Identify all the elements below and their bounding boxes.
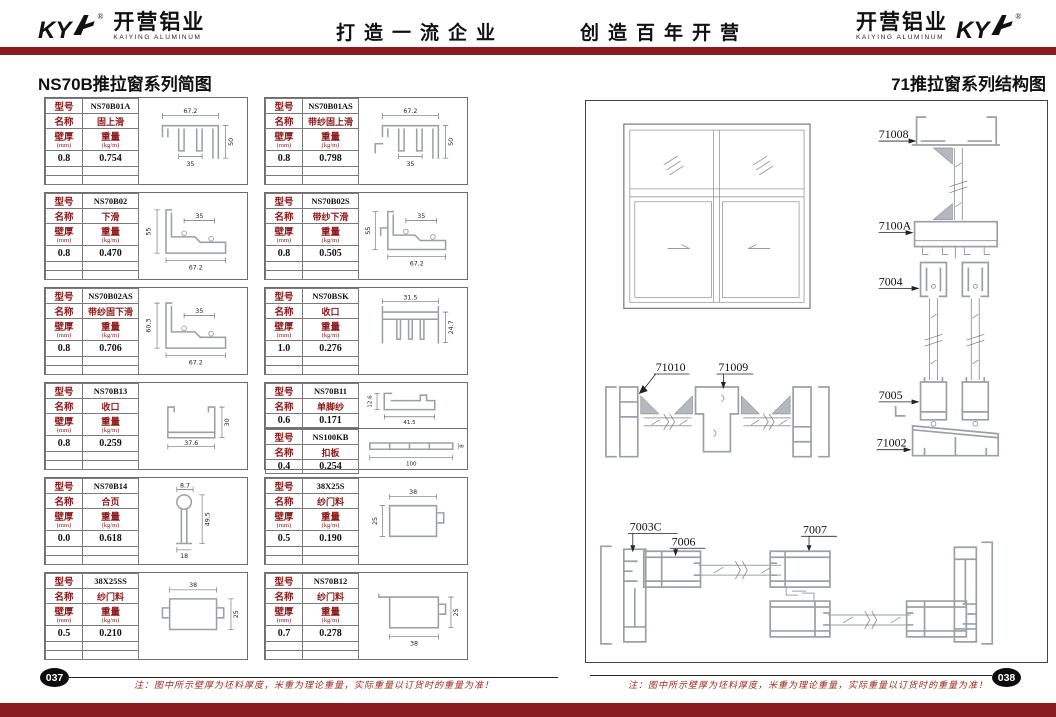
spec-table: 型号NS70B11 名称单脚纱 0.60.171 — [265, 383, 359, 428]
dim-right: 50 — [448, 138, 455, 146]
model-value: 38X25SS — [83, 574, 139, 589]
profile-half-NS70B11: 型号NS70B11 名称单脚纱 0.60.171 12.6 41.5 — [265, 383, 467, 428]
thickness-value: 0.5 — [266, 531, 303, 547]
dim-bottom: 18 — [180, 553, 188, 560]
profile-drawing: 55 35 67.2 — [139, 193, 249, 279]
model-label: 型号 — [266, 430, 303, 445]
profile-card-grid: 型号NS70B01A 名称固上滑 壁厚(mm) 重量(kg/m) 0.80.75… — [44, 97, 468, 660]
dim-left: 55 — [365, 227, 372, 235]
glass-hatch — [664, 156, 774, 175]
thickness-label: 壁厚(mm) — [46, 224, 83, 246]
profile-outline — [162, 599, 223, 630]
weight-label: 重量(kg/m) — [83, 604, 139, 626]
name-value: 带纱固下滑 — [83, 304, 139, 319]
profile-card-NS70B02S: 型号NS70B02S 名称带纱下滑 壁厚(mm) 重量(kg/m) 0.80.5… — [264, 192, 468, 280]
label-7004: 7004 — [879, 274, 903, 288]
weight-label: 重量(kg/m) — [303, 129, 359, 151]
profile-section-drawing: 100 8 — [359, 432, 469, 472]
name-label: 名称 — [266, 494, 303, 509]
thickness-value: 0.8 — [46, 341, 83, 357]
window-elevation — [624, 124, 810, 308]
profile-section-drawing: 31.5 24.7 — [359, 289, 469, 373]
weight-label: 重量(kg/m) — [83, 414, 139, 436]
right-jamb — [793, 387, 829, 457]
structure-diagram-panel: 71008 7100A 7004 7005 71002 — [585, 100, 1048, 663]
dim-right: 49.5 — [204, 512, 211, 526]
spec-table: 型号NS70BSK 名称收口 壁厚(mm) 重量(kg/m) 1.00.276 — [265, 288, 359, 375]
weight-value: 0.259 — [83, 436, 139, 452]
registered-mark: ® — [97, 12, 103, 21]
profile-drawing: 60.3 35 67.2 — [139, 288, 249, 374]
dim-right: 30 — [224, 418, 231, 426]
dim-top: 38 — [189, 582, 197, 589]
profile-outline — [381, 212, 446, 250]
model-value: NS70B02S — [303, 194, 359, 209]
model-value: NS70B02 — [83, 194, 139, 209]
profile-outline — [177, 508, 191, 543]
name-value: 固上滑 — [83, 114, 139, 129]
profile-section-drawing: 60.3 35 67.2 — [139, 289, 249, 373]
thickness-label: 壁厚(mm) — [266, 319, 303, 341]
thickness-value: 0.0 — [46, 531, 83, 547]
model-label: 型号 — [266, 384, 303, 399]
name-value: 收口 — [83, 399, 139, 414]
vertical-section — [896, 117, 1000, 456]
profile-outline — [382, 307, 438, 343]
footer-note-right: 注：图中所示壁厚为坯料厚度，米重为理论重量，实际重量以订货时的重量为准！ — [628, 678, 972, 691]
model-value: NS70B02AS — [83, 289, 139, 304]
weight-value: 0.618 — [83, 531, 139, 547]
label-7007: 7007 — [803, 522, 827, 536]
profile-section-drawing: 12.6 41.5 — [359, 386, 469, 426]
hinge-knuckle — [177, 495, 191, 509]
sash-top-7004 — [921, 263, 989, 297]
profile-outline — [370, 442, 453, 448]
dim-top: 8.7 — [180, 483, 190, 490]
dim-top: 38 — [409, 489, 417, 496]
model-label: 型号 — [46, 384, 83, 399]
weight-value: 0.190 — [303, 531, 359, 547]
dim-right: 50 — [228, 138, 235, 146]
weight-label: 重量(kg/m) — [303, 509, 359, 531]
name-label: 名称 — [266, 209, 303, 224]
dim-left: 25 — [372, 517, 379, 525]
weight-label: 重量(kg/m) — [83, 509, 139, 531]
profile-card-38X25SS: 型号38X25SS 名称纱门料 壁厚(mm) 重量(kg/m) 0.50.210… — [44, 572, 248, 660]
profile-card-NS70B02: 型号NS70B02 名称下滑 壁厚(mm) 重量(kg/m) 0.80.470 … — [44, 192, 248, 280]
thickness-label: 壁厚(mm) — [46, 414, 83, 436]
profile-card-NS70B14: 型号NS70B14 名称合页 壁厚(mm) 重量(kg/m) 0.00.618 … — [44, 477, 248, 565]
sash-stile-7006 — [644, 551, 701, 587]
sash-handles — [668, 245, 771, 249]
weight-value: 0.470 — [83, 246, 139, 262]
profile-drawing: 12.6 41.5 — [359, 383, 469, 428]
dim-bottom: 37.6 — [184, 440, 198, 447]
logo-cn-right: 开营铝业 — [856, 12, 948, 33]
name-label: 名称 — [46, 209, 83, 224]
spec-table: 型号NS70B13 名称收口 壁厚(mm) 重量(kg/m) 0.80.259 — [45, 383, 139, 470]
spec-table: 型号NS70B02AS 名称带纱固下滑 壁厚(mm) 重量(kg/m) 0.80… — [45, 288, 139, 375]
label-71002: 71002 — [877, 436, 907, 450]
profile-drawing: 67.2 35 50 — [359, 98, 469, 184]
profile-drawing: 8.7 49.5 18 — [139, 478, 249, 564]
thickness-label: 壁厚(mm) — [266, 129, 303, 151]
name-label: 名称 — [46, 304, 83, 319]
left-section-title: NS70B推拉窗系列简图 — [38, 70, 212, 95]
thickness-value: 0.6 — [266, 414, 303, 428]
thickness-label: 壁厚(mm) — [266, 509, 303, 531]
name-value: 收口 — [303, 304, 359, 319]
dim-top: 31.5 — [403, 294, 417, 301]
profile-card-NS70B01A: 型号NS70B01A 名称固上滑 壁厚(mm) 重量(kg/m) 0.80.75… — [44, 97, 248, 185]
label-71008: 71008 — [879, 127, 909, 141]
mullion-71009 — [696, 387, 739, 452]
dimension-lines — [154, 303, 225, 358]
model-value: NS70B01A — [83, 99, 139, 114]
name-label: 名称 — [266, 589, 303, 604]
profile-drawing: 55 35 67.2 — [359, 193, 469, 279]
model-value: NS70B01AS — [303, 99, 359, 114]
profile-section-drawing: 67.2 35 50 — [139, 99, 249, 183]
logo-ky-left: KY® — [38, 12, 103, 43]
ky-text: KY — [38, 17, 71, 44]
weight-value: 0.276 — [303, 341, 359, 357]
spec-table: 型号NS70B14 名称合页 壁厚(mm) 重量(kg/m) 0.00.618 — [45, 478, 139, 565]
weight-label: 重量(kg/m) — [83, 224, 139, 246]
profile-card-NS70B01AS: 型号NS70B01AS 名称带纱固上滑 壁厚(mm) 重量(kg/m) 0.80… — [264, 97, 468, 185]
spec-table: 型号38X25SS 名称纱门料 壁厚(mm) 重量(kg/m) 0.50.210 — [45, 573, 139, 660]
name-value: 纱门料 — [83, 589, 139, 604]
profile-card-NS70B12: 型号NS70B12 名称纱门料 壁厚(mm) 重量(kg/m) 0.70.278… — [264, 572, 468, 660]
registered-mark: ® — [1015, 12, 1021, 21]
model-value: NS100KB — [303, 430, 359, 445]
spec-table: 型号NS70B02S 名称带纱下滑 壁厚(mm) 重量(kg/m) 0.80.5… — [265, 193, 359, 280]
profile-card-NS70B11-NS100KB: 型号NS70B11 名称单脚纱 0.60.171 12.6 41.5 型号NS1… — [264, 382, 468, 470]
name-label: 名称 — [46, 399, 83, 414]
name-label: 名称 — [266, 304, 303, 319]
label-71010: 71010 — [656, 360, 686, 374]
profile-outline — [168, 407, 215, 438]
weight-label: 重量(kg/m) — [303, 604, 359, 626]
profile-drawing: 100 8 — [359, 429, 469, 474]
profile-section-drawing: 38 25 — [139, 574, 249, 658]
thickness-value: 0.4 — [266, 460, 303, 474]
profile-section-drawing: 55 35 67.2 — [139, 194, 249, 278]
dim-top: 35 — [195, 308, 203, 315]
right-section-title: 71推拉窗系列结构图 — [891, 70, 1046, 95]
model-value: 38X25S — [303, 479, 359, 494]
dim-right: 25 — [233, 610, 240, 618]
footer-rule-right — [590, 675, 992, 676]
profile-drawing: 38 25 — [139, 573, 249, 659]
profile-outline — [379, 594, 446, 627]
ky-text: KY — [956, 17, 989, 44]
thickness-value: 0.5 — [46, 626, 83, 642]
name-value: 下滑 — [83, 209, 139, 224]
left-jamb-7003C — [601, 546, 646, 644]
dimension-lines — [390, 597, 454, 639]
weight-label: 重量(kg/m) — [83, 129, 139, 151]
logo-en-left: KAIYING ALUMINUM — [113, 35, 205, 42]
profile-outline — [390, 506, 444, 537]
profile-drawing: 38 25 — [359, 478, 469, 564]
thickness-label: 壁厚(mm) — [46, 129, 83, 151]
spec-table: 型号NS70B01A 名称固上滑 壁厚(mm) 重量(kg/m) 0.80.75… — [45, 98, 139, 185]
profile-section-drawing: 8.7 49.5 18 — [139, 479, 249, 563]
dim-bottom: 100 — [406, 461, 417, 467]
model-value: NS70B13 — [83, 384, 139, 399]
name-value: 纱门料 — [303, 589, 359, 604]
structure-diagram: 71008 7100A 7004 7005 71002 — [586, 101, 1047, 662]
profile-section-drawing: 38 25 — [359, 574, 469, 658]
profile-section-drawing: 37.6 30 — [139, 384, 249, 468]
kaiying-logo-mark-icon — [71, 12, 97, 38]
profile-card-NS70B02AS: 型号NS70B02AS 名称带纱固下滑 壁厚(mm) 重量(kg/m) 0.80… — [44, 287, 248, 375]
lower-horizontal-section: 7003C 7006 7007 — [601, 519, 992, 644]
logo-cn-left: 开营铝业 — [113, 12, 205, 33]
spec-table: 型号NS70B12 名称纱门料 壁厚(mm) 重量(kg/m) 0.70.278 — [265, 573, 359, 660]
weight-value: 0.754 — [83, 151, 139, 167]
slogan-right: 创造百年开营 — [580, 18, 748, 45]
interlock — [786, 587, 814, 601]
dim-bottom: 35 — [406, 161, 414, 168]
name-value: 纱门料 — [303, 494, 359, 509]
thickness-value: 0.7 — [266, 626, 303, 642]
dim-right: 24.7 — [448, 320, 455, 334]
dim-top: 67.2 — [403, 108, 417, 115]
dimension-lines — [380, 494, 437, 536]
weight-value: 0.505 — [303, 246, 359, 262]
name-value: 扣板 — [303, 445, 359, 460]
model-label: 型号 — [46, 289, 83, 304]
model-label: 型号 — [46, 574, 83, 589]
weight-value: 0.706 — [83, 341, 139, 357]
thickness-label: 壁厚(mm) — [46, 604, 83, 626]
thickness-value: 1.0 — [266, 341, 303, 357]
transom-7100A — [915, 222, 998, 247]
dim-bottom: 38 — [410, 641, 418, 648]
thickness-label: 壁厚(mm) — [46, 509, 83, 531]
footer-note-left: 注：图中所示壁厚为坯料厚度，米重为理论重量，实际重量以订货时的重量为准！ — [96, 678, 532, 691]
header-accent-bar — [0, 47, 1056, 55]
thickness-value: 0.8 — [46, 436, 83, 452]
model-label: 型号 — [46, 99, 83, 114]
name-value: 带纱固上滑 — [303, 114, 359, 129]
footer-accent-bar — [0, 703, 1056, 717]
profile-card-NS70B13: 型号NS70B13 名称收口 壁厚(mm) 重量(kg/m) 0.80.259 … — [44, 382, 248, 470]
name-label: 名称 — [46, 114, 83, 129]
weight-value: 0.171 — [303, 414, 359, 428]
thickness-value: 0.8 — [266, 151, 303, 167]
dimension-lines — [374, 393, 434, 419]
model-label: 型号 — [266, 194, 303, 209]
label-71009: 71009 — [718, 360, 748, 374]
profile-drawing: 38 25 — [359, 573, 469, 659]
dim-bottom: 67.2 — [189, 359, 203, 366]
model-value: NS70B11 — [303, 384, 359, 399]
weight-value: 0.254 — [303, 460, 359, 474]
thickness-value: 0.8 — [46, 246, 83, 262]
name-label: 名称 — [266, 114, 303, 129]
model-label: 型号 — [266, 99, 303, 114]
top-frame-71008 — [913, 117, 1000, 145]
profile-outline — [162, 126, 218, 158]
dim-bottom: 41.5 — [403, 420, 416, 426]
thickness-value: 0.8 — [266, 246, 303, 262]
thickness-value: 0.8 — [46, 151, 83, 167]
slogan-left: 打造一流企业 — [336, 18, 504, 45]
profile-drawing: 67.2 35 50 — [139, 98, 249, 184]
model-value: NS70B12 — [303, 574, 359, 589]
kaiying-logo-mark-icon — [989, 12, 1015, 38]
profile-section-drawing: 67.2 35 50 — [359, 99, 469, 183]
spec-table: 型号NS70B02 名称下滑 壁厚(mm) 重量(kg/m) 0.80.470 — [45, 193, 139, 280]
profile-card-NS70BSK: 型号NS70BSK 名称收口 壁厚(mm) 重量(kg/m) 1.00.276 … — [264, 287, 468, 375]
page-number-right: 038 — [992, 668, 1021, 687]
name-label: 名称 — [266, 399, 303, 414]
dim-top: 35 — [195, 213, 203, 220]
model-label: 型号 — [46, 194, 83, 209]
model-value: NS70B14 — [83, 479, 139, 494]
left-jamb — [606, 387, 638, 457]
logo-en-right: KAIYING ALUMINUM — [856, 35, 948, 42]
weight-value: 0.278 — [303, 626, 359, 642]
dim-bottom: 35 — [186, 161, 194, 168]
vertical-section-labels: 71008 7100A 7004 7005 71002 — [877, 127, 920, 452]
name-label: 名称 — [46, 589, 83, 604]
dim-bottom: 67.2 — [189, 264, 203, 271]
logo-left: KY® 开营铝业 KAIYING ALUMINUM — [38, 12, 205, 43]
profile-outline — [384, 393, 434, 409]
profile-drawing: 31.5 24.7 — [359, 288, 469, 374]
profile-card-38X25S: 型号38X25S 名称纱门料 壁厚(mm) 重量(kg/m) 0.50.190 … — [264, 477, 468, 565]
dim-bottom: 67.2 — [410, 261, 424, 268]
profile-half-NS100KB: 型号NS100KB 名称扣板 0.40.254 100 8 — [265, 428, 467, 474]
spec-table: 型号NS70B01AS 名称带纱固上滑 壁厚(mm) 重量(kg/m) 0.80… — [265, 98, 359, 185]
name-label: 名称 — [46, 494, 83, 509]
thickness-label: 壁厚(mm) — [266, 604, 303, 626]
dim-left: 55 — [146, 227, 153, 235]
model-label: 型号 — [46, 479, 83, 494]
model-value: NS70BSK — [303, 289, 359, 304]
name-value: 合页 — [83, 494, 139, 509]
upper-horizontal-section: 71010 71009 — [606, 360, 829, 457]
name-value: 单脚纱 — [303, 399, 359, 414]
lower-sash-stile — [770, 601, 830, 637]
name-label: 名称 — [266, 445, 303, 460]
logo-ky-right: KY® — [956, 12, 1021, 43]
label-7005: 7005 — [879, 388, 903, 402]
spec-table: 型号38X25S 名称纱门料 壁厚(mm) 重量(kg/m) 0.50.190 — [265, 478, 359, 565]
weight-label: 重量(kg/m) — [303, 319, 359, 341]
profile-outline — [375, 126, 438, 158]
dim-right: 25 — [453, 608, 460, 616]
page-number-left: 037 — [40, 668, 69, 687]
right-sash-stile — [907, 601, 967, 637]
weight-label: 重量(kg/m) — [303, 224, 359, 246]
model-label: 型号 — [266, 479, 303, 494]
label-7006: 7006 — [672, 534, 696, 548]
right-jamb — [954, 542, 992, 644]
dim-top: 35 — [417, 213, 425, 220]
model-label: 型号 — [266, 574, 303, 589]
dimension-lines — [370, 442, 458, 459]
spec-table: 型号NS100KB 名称扣板 0.40.254 — [265, 429, 359, 474]
model-label: 型号 — [266, 289, 303, 304]
thickness-label: 壁厚(mm) — [46, 319, 83, 341]
thickness-label: 壁厚(mm) — [266, 224, 303, 246]
dim-left: 60.3 — [146, 319, 153, 333]
logo-right: 开营铝业 KAIYING ALUMINUM KY® — [856, 12, 1021, 43]
dim-right: 8 — [460, 443, 466, 447]
weight-label: 重量(kg/m) — [83, 319, 139, 341]
profile-section-drawing: 55 35 67.2 — [359, 194, 469, 278]
dim-left: 12.6 — [368, 394, 374, 407]
name-value: 带纱下滑 — [303, 209, 359, 224]
meeting-stile-7007 — [770, 551, 830, 587]
profile-section-drawing: 38 25 — [359, 479, 469, 563]
profile-drawing: 37.6 30 — [139, 383, 249, 469]
weight-value: 0.210 — [83, 626, 139, 642]
dim-top: 67.2 — [183, 108, 197, 115]
sash-bottom-7005 — [921, 378, 989, 420]
weight-value: 0.798 — [303, 151, 359, 167]
label-7003C: 7003C — [630, 519, 662, 533]
